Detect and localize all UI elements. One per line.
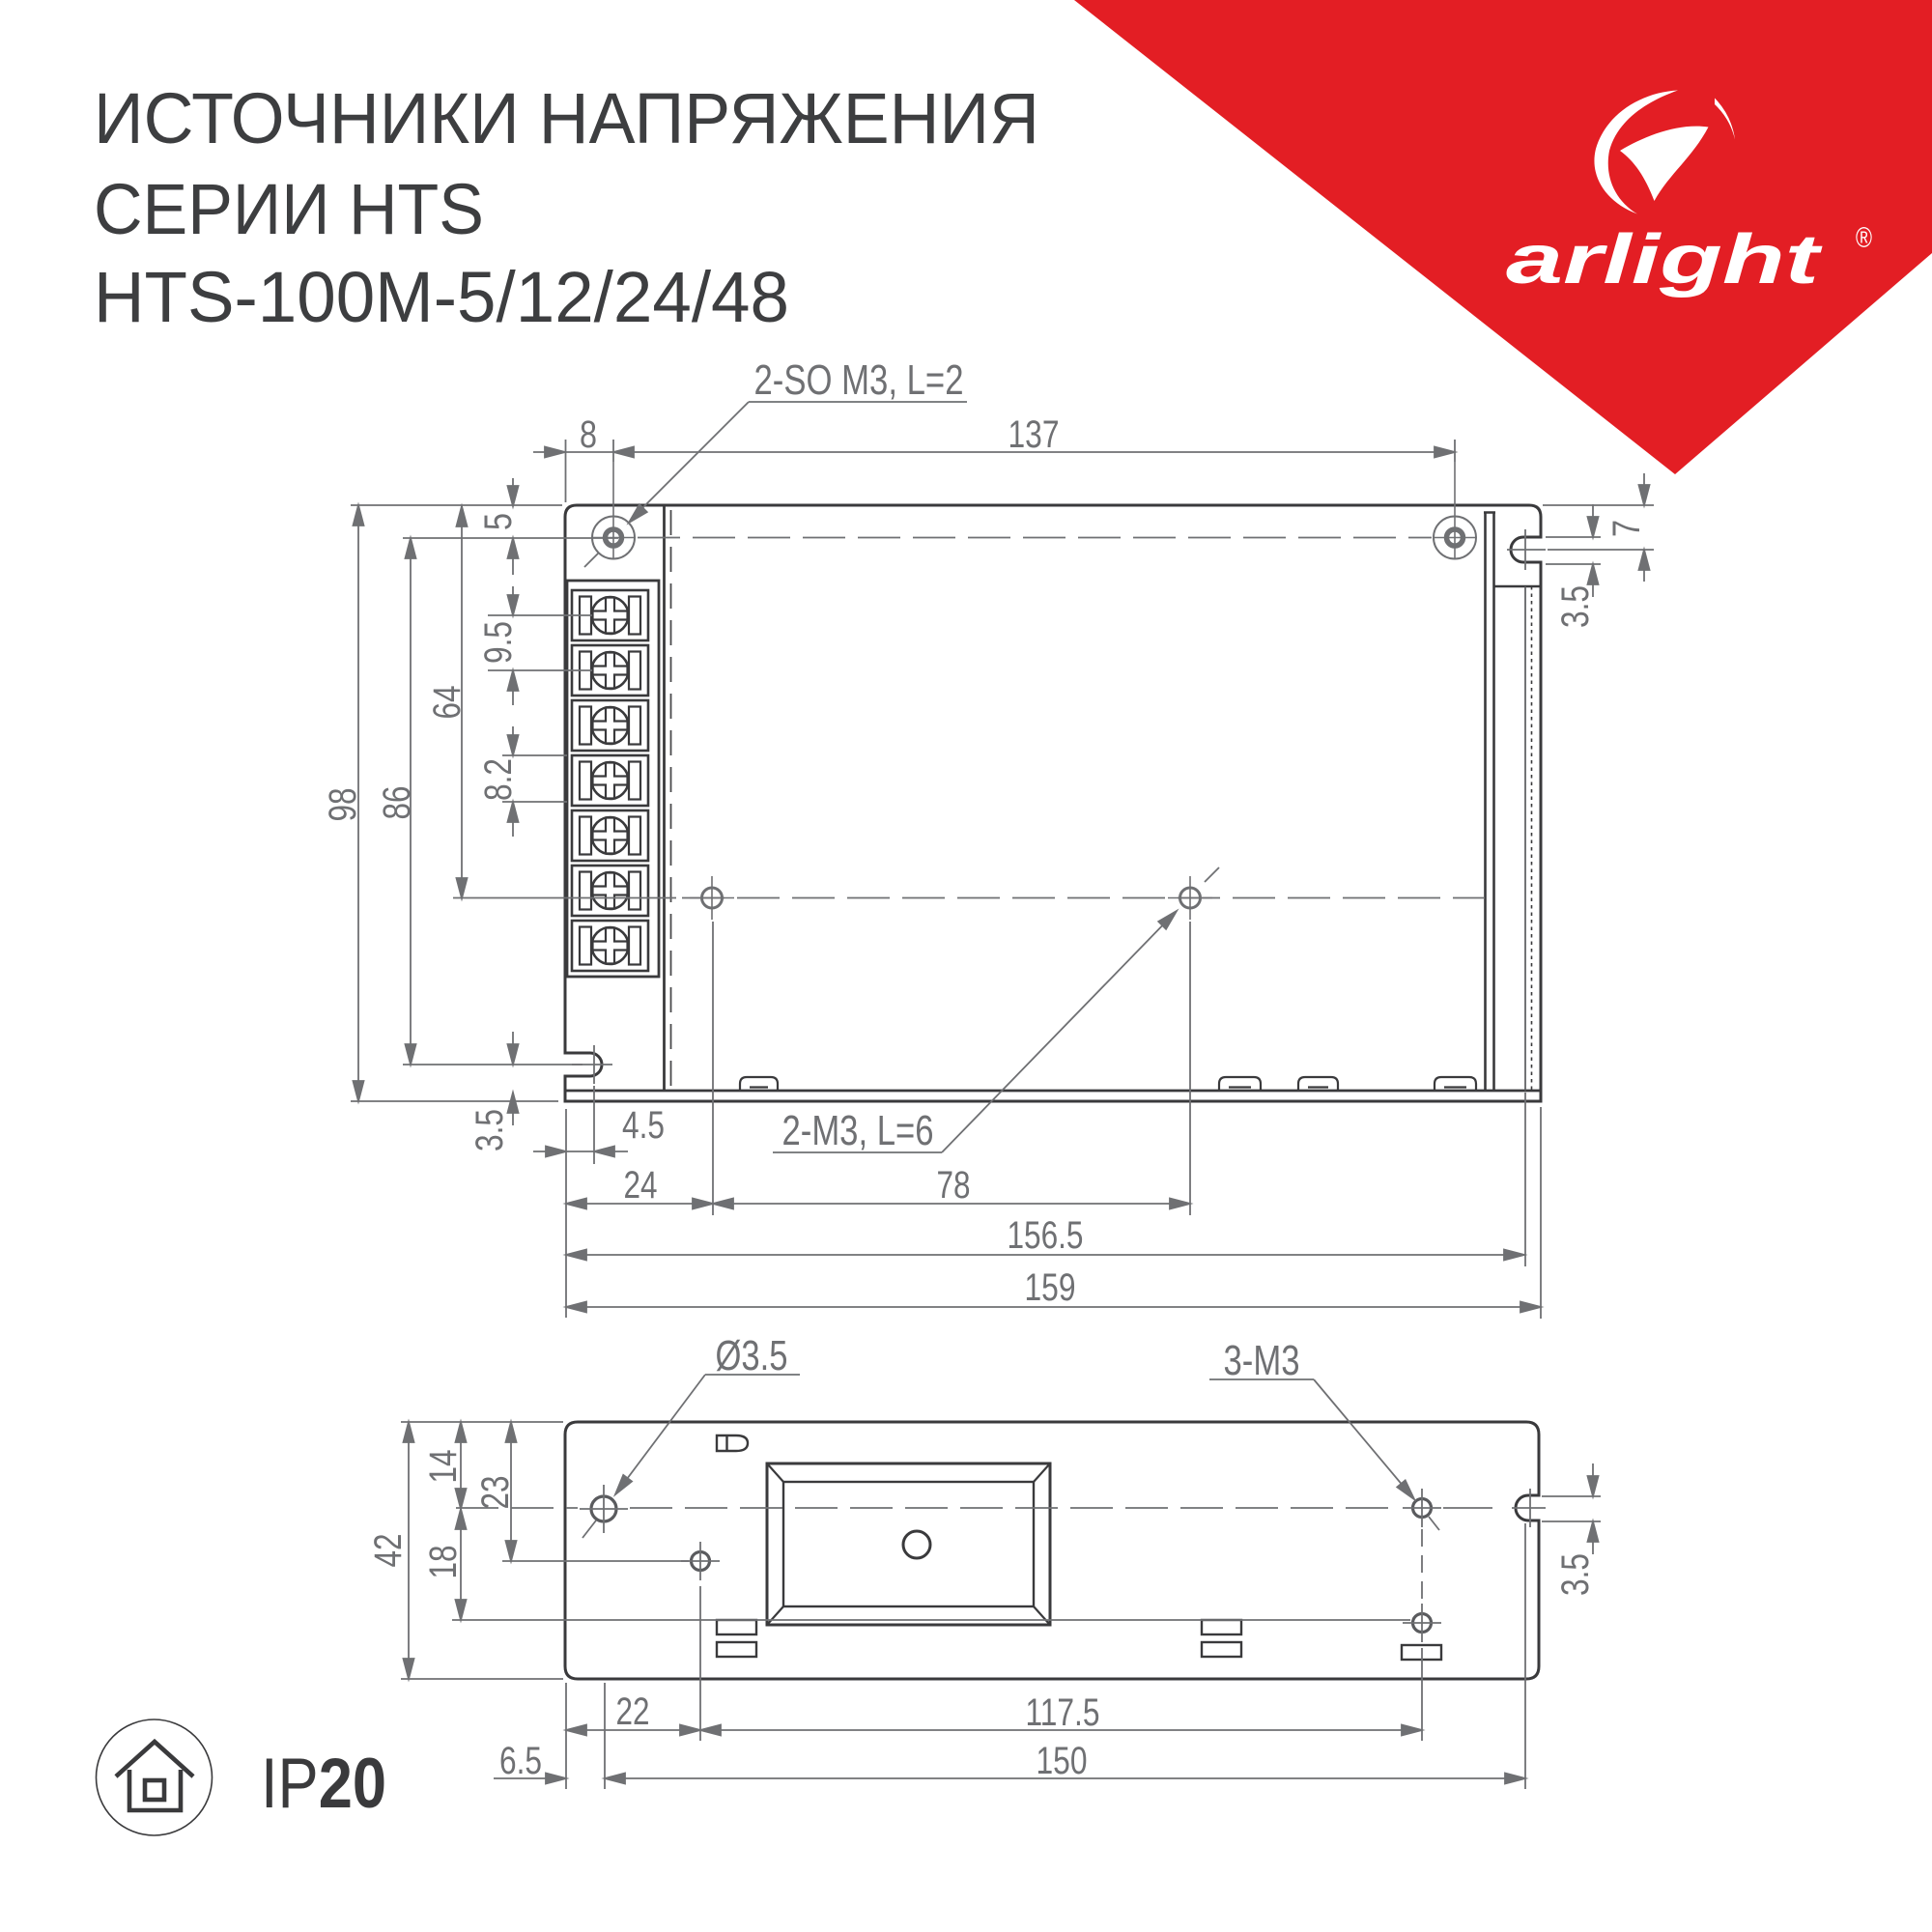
svg-text:14: 14 [422,1450,465,1484]
svg-text:156.5: 156.5 [1008,1214,1084,1257]
svg-text:arlight: arlight [1506,221,1823,298]
svg-text:8.2: 8.2 [477,758,520,801]
svg-text:2-M3, L=6: 2-M3, L=6 [782,1107,934,1154]
svg-text:HTS-100M-5/12/24/48: HTS-100M-5/12/24/48 [94,257,789,337]
svg-text:Ø3.5: Ø3.5 [716,1332,788,1379]
svg-text:18: 18 [422,1546,465,1579]
svg-text:159: 159 [1025,1266,1076,1309]
svg-text:8: 8 [580,413,597,456]
svg-text:78: 78 [937,1164,971,1207]
svg-text:IP20: IP20 [261,1745,386,1823]
svg-text:7: 7 [1605,520,1648,537]
svg-text:СЕРИИ HTS: СЕРИИ HTS [94,169,484,249]
svg-text:®: ® [1856,222,1872,254]
svg-text:117.5: 117.5 [1026,1691,1100,1734]
svg-text:24: 24 [624,1164,658,1207]
svg-text:22: 22 [616,1690,650,1733]
svg-text:64: 64 [426,686,469,720]
svg-text:3.5: 3.5 [1554,585,1597,628]
svg-text:ИСТОЧНИКИ НАПРЯЖЕНИЯ: ИСТОЧНИКИ НАПРЯЖЕНИЯ [94,78,1039,158]
svg-text:4.5: 4.5 [622,1104,665,1147]
svg-text:42: 42 [367,1534,410,1568]
svg-text:5: 5 [477,513,520,530]
svg-text:137: 137 [1009,413,1060,456]
svg-text:86: 86 [376,786,418,820]
svg-text:9.5: 9.5 [477,621,520,664]
svg-text:3.5: 3.5 [1554,1553,1597,1596]
svg-text:98: 98 [322,788,364,822]
svg-text:23: 23 [474,1476,517,1510]
svg-text:3.5: 3.5 [469,1109,511,1151]
svg-text:6.5: 6.5 [499,1740,542,1782]
svg-text:150: 150 [1037,1740,1088,1782]
svg-text:3-M3: 3-M3 [1224,1337,1300,1384]
svg-text:2-SO M3, L=2: 2-SO M3, L=2 [754,356,964,404]
